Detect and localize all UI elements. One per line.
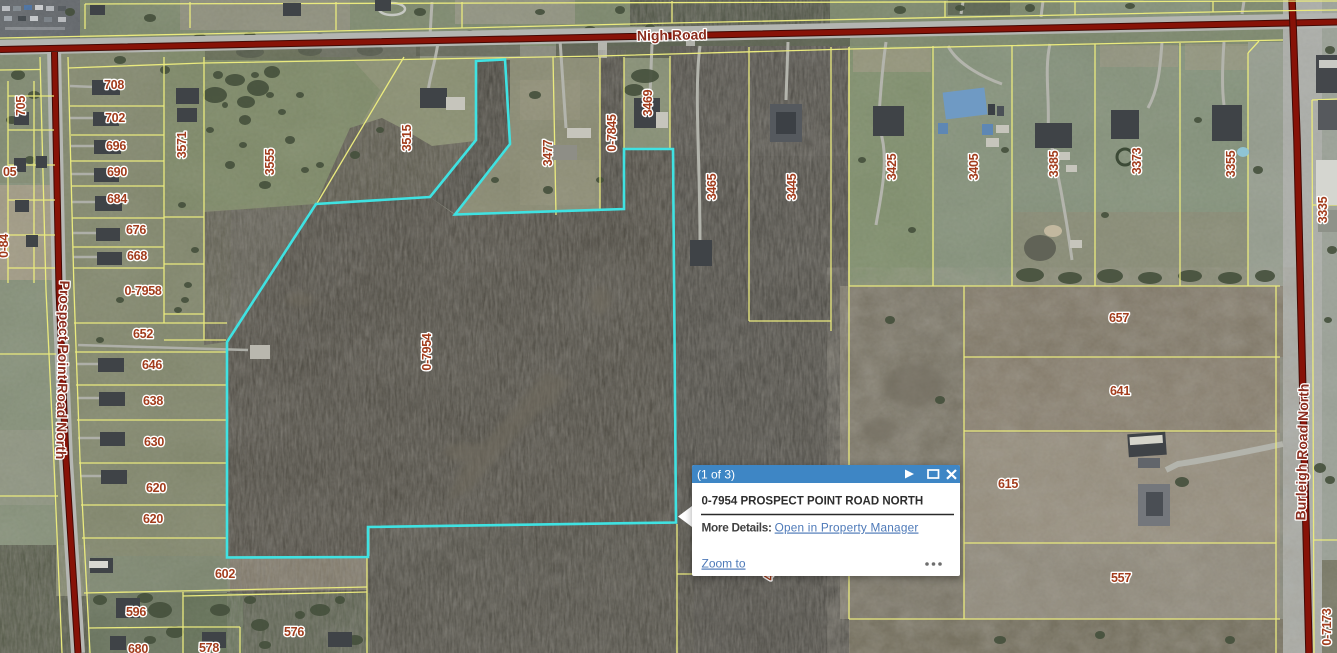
svg-text:3385: 3385 — [1047, 150, 1061, 177]
svg-text:638: 638 — [143, 394, 163, 408]
svg-text:615: 615 — [998, 477, 1018, 491]
svg-text:Burleigh Road North: Burleigh Road North — [1292, 383, 1311, 520]
svg-text:690: 690 — [107, 165, 127, 179]
svg-text:0-7958: 0-7958 — [124, 284, 161, 298]
svg-text:0-7845: 0-7845 — [605, 114, 619, 151]
svg-text:3355: 3355 — [1224, 150, 1238, 177]
svg-text:3555: 3555 — [263, 148, 277, 175]
svg-text:602: 602 — [215, 567, 235, 581]
svg-text:696: 696 — [106, 139, 126, 153]
svg-text:3425: 3425 — [885, 153, 899, 180]
svg-text:0-84: 0-84 — [0, 234, 11, 258]
svg-text:557: 557 — [1111, 571, 1131, 585]
svg-text:668: 668 — [127, 249, 147, 263]
svg-text:646: 646 — [142, 358, 162, 372]
svg-text:Zoom to: Zoom to — [702, 557, 746, 571]
svg-text:3465: 3465 — [705, 173, 719, 200]
svg-text:657: 657 — [1109, 311, 1129, 325]
svg-text:676: 676 — [126, 223, 146, 237]
svg-text:708: 708 — [104, 78, 124, 92]
svg-text:705: 705 — [14, 96, 28, 116]
svg-text:3405: 3405 — [967, 153, 981, 180]
svg-text:3515: 3515 — [400, 124, 414, 151]
svg-text:620: 620 — [143, 512, 163, 526]
svg-text:576: 576 — [284, 625, 304, 639]
svg-text:652: 652 — [133, 327, 153, 341]
svg-text:3335: 3335 — [1316, 196, 1330, 223]
svg-text:3571: 3571 — [175, 131, 189, 158]
svg-text:3477: 3477 — [541, 139, 555, 166]
svg-text:684: 684 — [107, 192, 127, 206]
svg-text:Nigh Road: Nigh Road — [637, 26, 707, 43]
svg-text:3373: 3373 — [1130, 147, 1144, 174]
svg-text:3445: 3445 — [785, 173, 799, 200]
svg-text:(1 of 3): (1 of 3) — [697, 468, 735, 482]
svg-text:620: 620 — [146, 481, 166, 495]
svg-text:0-7954 PROSPECT POINT ROAD NOR: 0-7954 PROSPECT POINT ROAD NORTH — [702, 496, 924, 508]
svg-text:0-7173: 0-7173 — [1320, 608, 1334, 645]
svg-text:More Details: Open in Property: More Details: Open in Property Manager — [702, 521, 919, 535]
svg-text:0-7954: 0-7954 — [420, 333, 434, 370]
svg-text:680: 680 — [128, 642, 148, 653]
svg-text:578: 578 — [199, 641, 219, 653]
svg-text:3469: 3469 — [641, 89, 655, 116]
svg-text:702: 702 — [105, 111, 125, 125]
svg-text:596: 596 — [126, 605, 146, 619]
svg-text:641: 641 — [1110, 384, 1130, 398]
svg-text:630: 630 — [144, 435, 164, 449]
svg-text:05: 05 — [3, 165, 17, 179]
